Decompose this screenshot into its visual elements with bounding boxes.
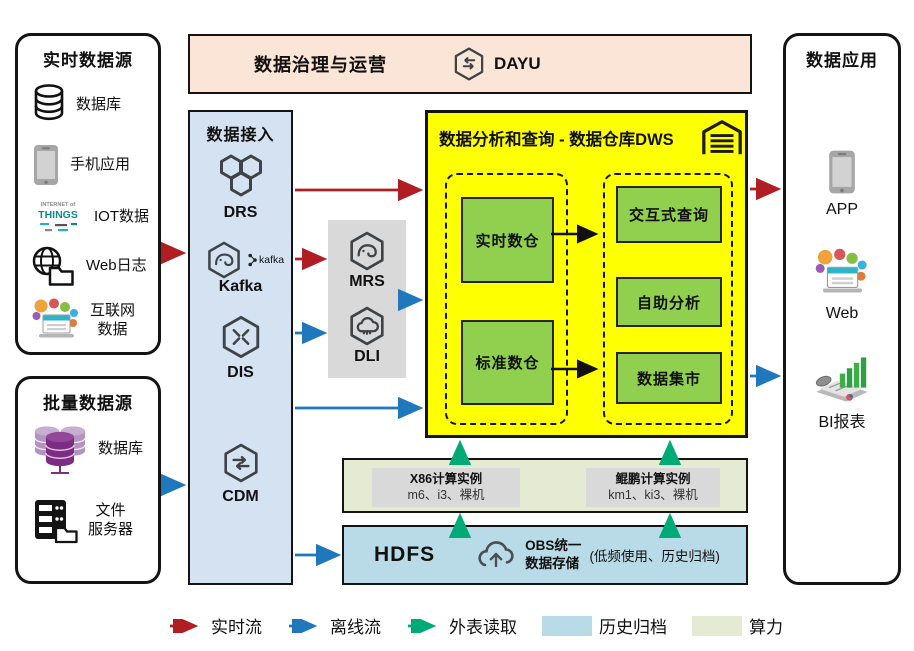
bi-report-icon: [814, 354, 870, 404]
realtime-sources-title: 实时数据源: [18, 36, 158, 71]
list-item: INTERNET of THINGS IOT数据: [18, 196, 158, 238]
green-arrow-icon: [406, 619, 442, 633]
architecture-diagram: 实时数据源 数据库 手机应用 INTERNET of THINGS: [0, 0, 914, 651]
web-item: [786, 248, 898, 300]
legend-archive: 历史归档: [542, 613, 667, 638]
obs-label: OBS统一 数据存储: [525, 537, 581, 572]
mrs-service: [328, 230, 406, 272]
iot-wordcloud-icon: INTERNET of THINGS: [31, 196, 85, 238]
drs-label: DRS: [190, 204, 291, 222]
dis-service: [190, 314, 291, 360]
dayu-badge: DAYU: [451, 45, 541, 83]
storage-box: HDFS OBS统一 数据存储 (低频使用、历史归档): [342, 525, 748, 585]
realtime-sources-box: 实时数据源 数据库 手机应用 INTERNET of THINGS: [15, 33, 161, 355]
src-label: IOT数据: [94, 208, 149, 227]
legend-label: 算力: [749, 613, 783, 638]
legend-offline-flow: 离线流: [287, 613, 381, 638]
x86-title: X86计算实例: [372, 471, 520, 487]
app-phone-icon: [826, 148, 858, 196]
analysis-group: 交互式查询 自助分析 数据集市: [603, 173, 733, 425]
warehouse-group: 实时数仓 标准数仓: [445, 173, 568, 425]
dli-service: [328, 305, 406, 347]
legend-external-read: 外表读取: [406, 613, 517, 638]
dayu-label: DAYU: [494, 54, 541, 74]
realtime-warehouse: 实时数仓: [461, 197, 554, 283]
legend: 实时流 离线流 外表读取 历史归档 算力: [168, 613, 828, 638]
dayu-icon: [451, 45, 487, 83]
legend-label: 外表读取: [449, 613, 517, 638]
compute-box: X86计算实例 m6、i3、裸机 鲲鹏计算实例 km1、ki3、裸机: [342, 458, 748, 513]
svg-text:INTERNET of: INTERNET of: [41, 202, 75, 208]
governance-banner: 数据治理与运营 DAYU: [188, 34, 752, 94]
list-item: 文件 服务器: [18, 497, 158, 545]
kafka-logo-dots-icon: [248, 253, 257, 267]
red-arrow-icon: [168, 619, 204, 633]
cdm-service: [190, 442, 291, 484]
hdfs-label: HDFS: [374, 543, 435, 567]
archive-swatch: [542, 616, 592, 636]
bi-label: BI报表: [786, 408, 898, 432]
drs-icon: [213, 152, 269, 202]
internet-bubbles-icon: [31, 298, 81, 344]
kafka-service: kafka: [204, 240, 284, 280]
batch-sources-title: 批量数据源: [18, 379, 158, 414]
x86-spec: m6、i3、裸机: [372, 487, 520, 503]
dli-icon: [345, 305, 389, 347]
self-analysis: 自助分析: [616, 277, 722, 327]
obs-cloud-icon: [475, 537, 517, 573]
kafka-label: Kafka: [190, 278, 291, 296]
data-access-panel: 数据接入 DRS kafka Kafka: [188, 110, 293, 585]
list-item: 手机应用: [18, 143, 158, 187]
dli-label: DLI: [328, 348, 406, 366]
src-label: 数据库: [76, 96, 121, 115]
src-label: 手机应用: [70, 156, 130, 175]
kunpeng-spec: km1、ki3、裸机: [586, 487, 720, 503]
data-apps-box: 数据应用 APP: [783, 33, 901, 585]
list-item: 互联网 数据: [18, 298, 158, 344]
database-icon: [31, 83, 67, 127]
blue-arrow-icon: [287, 619, 323, 633]
legend-label: 离线流: [330, 613, 381, 638]
list-item: 数据库: [18, 83, 158, 127]
web-portal-icon: [814, 248, 870, 300]
legend-compute: 算力: [692, 613, 783, 638]
warehouse-icon: [700, 118, 744, 158]
dws-title: 数据分析和查询 - 数据仓库DWS: [439, 126, 709, 150]
list-item: 数据库: [18, 421, 158, 477]
src-label: 数据库: [98, 440, 143, 459]
standard-warehouse: 标准数仓: [461, 320, 554, 405]
app-label: APP: [786, 201, 898, 219]
database-cluster-icon: [31, 421, 89, 477]
kafka-icon: [204, 240, 244, 280]
dis-icon: [217, 314, 265, 360]
compute-swatch: [692, 616, 742, 636]
web-label: Web: [786, 305, 898, 323]
processing-panel: MRS DLI: [328, 220, 406, 378]
data-access-title: 数据接入: [190, 121, 291, 145]
kunpeng-title: 鲲鹏计算实例: [586, 471, 720, 487]
cdm-icon: [219, 442, 263, 484]
legend-label: 历史归档: [599, 613, 667, 638]
app-item: [786, 148, 898, 196]
list-item: Web日志: [18, 245, 158, 287]
mrs-icon: [345, 230, 389, 272]
governance-title: 数据治理与运营: [254, 51, 387, 77]
storage-note: (低频使用、历史归档): [589, 545, 720, 565]
src-label: Web日志: [86, 257, 147, 276]
mrs-label: MRS: [328, 273, 406, 291]
cdm-label: CDM: [190, 488, 291, 506]
bi-item: [786, 354, 898, 404]
kunpeng-instance: 鲲鹏计算实例 km1、ki3、裸机: [586, 468, 720, 507]
data-mart: 数据集市: [616, 352, 722, 404]
globe-folder-icon: [31, 245, 77, 287]
legend-label: 实时流: [211, 613, 262, 638]
batch-sources-box: 批量数据源 数据库: [15, 376, 161, 584]
legend-realtime-flow: 实时流: [168, 613, 262, 638]
svg-text:THINGS: THINGS: [38, 209, 78, 221]
src-label: 互联网 数据: [90, 302, 135, 340]
drs-service: [190, 152, 291, 202]
dis-label: DIS: [190, 364, 291, 382]
file-server-icon: [31, 497, 79, 545]
kafka-badge-label: kafka: [259, 254, 284, 266]
interactive-query: 交互式查询: [616, 186, 722, 243]
x86-instance: X86计算实例 m6、i3、裸机: [372, 468, 520, 507]
dws-box: 数据分析和查询 - 数据仓库DWS 实时数仓 标准数仓 交互式查询 自助分析 数…: [425, 110, 748, 438]
src-label: 文件 服务器: [88, 502, 133, 540]
phone-icon: [31, 143, 61, 187]
data-apps-title: 数据应用: [786, 36, 898, 71]
